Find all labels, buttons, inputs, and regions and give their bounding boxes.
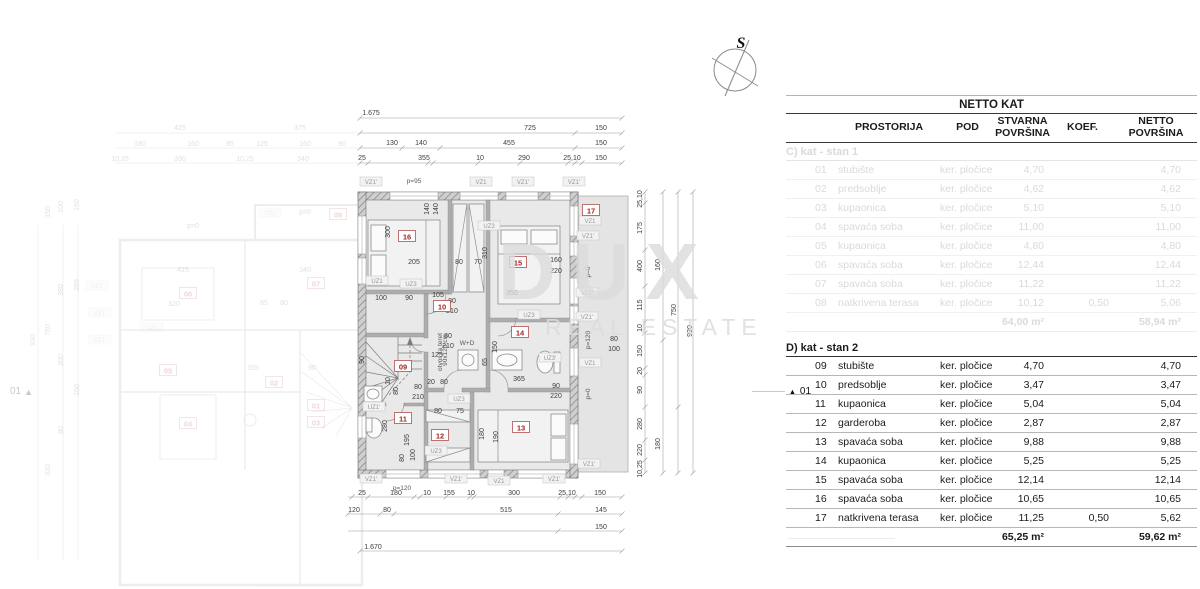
dim-label: 725	[524, 125, 536, 132]
dim-label: 150	[594, 490, 606, 497]
room-number: 10	[438, 303, 446, 312]
parapet-label: p=0	[585, 388, 592, 399]
opening-tag-label: UZ3	[405, 282, 417, 288]
cell: ker. pločice	[940, 297, 995, 309]
cell: 9,88	[995, 436, 1050, 448]
cell: 12,44	[995, 259, 1050, 271]
cell: 5,06	[1115, 297, 1197, 309]
cell: 2,87	[995, 417, 1050, 429]
cell: stubište	[838, 360, 940, 372]
dim-label: 80	[434, 408, 442, 415]
bg-dim-label: 320	[168, 301, 180, 308]
room-number: 12	[436, 432, 444, 441]
cell: ker. pločice	[940, 164, 995, 176]
dim-label: 220	[637, 444, 644, 456]
cell: ker. pločice	[940, 240, 995, 252]
dim-label: 10	[385, 377, 392, 385]
cell: spavaća soba	[838, 436, 940, 448]
cell: 02	[786, 183, 838, 195]
dim-label: 10	[467, 490, 475, 497]
dim-label: 1.675	[362, 110, 380, 117]
bg-dim-label: 90	[308, 365, 316, 372]
bg-dim-label: 425	[174, 125, 186, 132]
table-sections: C) kat - stan 101stubišteker. pločice4,7…	[786, 143, 1197, 547]
cell: 17	[786, 512, 838, 524]
dim-label: 310	[482, 247, 489, 259]
opening-tag-label: VZ1'	[583, 462, 595, 468]
compass: S	[712, 35, 758, 96]
table-row: 01stubišteker. pločice4,704,70	[786, 161, 1197, 180]
bg-dim-label: 340	[297, 156, 309, 163]
bg-dim-label: 150	[45, 206, 52, 218]
dim-label: 190	[493, 431, 500, 443]
total-stvarna: 65,25 m²	[995, 531, 1050, 543]
table-row: 14kupaonicaker. pločice5,255,25	[786, 452, 1197, 471]
bg-dim-label: 200	[58, 354, 65, 366]
dim-label: 150	[595, 524, 607, 531]
marker-label: 01	[10, 386, 21, 397]
floor-plan-sheet: 425375180160851251609010,2539010,2534015…	[0, 0, 1200, 589]
cell: natkrivena terasa	[838, 297, 940, 309]
opening-tag-label: VZ1	[264, 211, 276, 217]
bg-dim-label: p=0	[299, 209, 311, 216]
bg-dim-label: 90	[338, 141, 346, 148]
watermark-logo: DUX	[498, 232, 715, 312]
room-number: 04	[184, 420, 193, 429]
bg-dim-label: 10,25	[236, 156, 254, 163]
dim-label: 105	[432, 292, 444, 299]
table-row: 04spavaća sobaker. pločice11,0011,00	[786, 218, 1197, 237]
bg-dim-label: 155	[247, 365, 259, 372]
dim-label: 120	[348, 507, 360, 514]
dim-label: 195	[404, 434, 411, 446]
table-row: 11kupaonicaker. pločice5,045,04	[786, 395, 1197, 414]
bg-dim-label: p=0	[187, 223, 199, 230]
cell: 4,70	[1115, 164, 1197, 176]
cell: 13	[786, 436, 838, 448]
cell: 11,00	[1115, 221, 1197, 233]
opening-tag-label: VZ1	[584, 219, 596, 225]
room-number: 17	[587, 207, 595, 216]
col-pod: POD	[940, 122, 995, 134]
cell: kupaonica	[838, 240, 940, 252]
dim-label: 280	[382, 420, 389, 432]
cell: 11,22	[995, 278, 1050, 290]
bg-dim-label: 10,25	[111, 156, 129, 163]
cell: 4,70	[1115, 360, 1197, 372]
total-netto: 59,62 m²	[1115, 531, 1197, 543]
cell: 4,80	[995, 240, 1050, 252]
cell: 14	[786, 455, 838, 467]
cell: 10,65	[995, 493, 1050, 505]
cell: ker. pločice	[940, 202, 995, 214]
dim-label: 100	[410, 449, 417, 461]
bg-dim-label: 180	[134, 141, 146, 148]
total-stvarna: 64,00 m²	[995, 316, 1050, 328]
opening-tag-label: UZ3	[453, 397, 465, 403]
cell: 4,70	[995, 164, 1050, 176]
dim-label: 205	[408, 259, 420, 266]
table-section: C) kat - stan 101stubišteker. pločice4,7…	[786, 143, 1197, 332]
bg-dim-label: 160	[74, 199, 81, 211]
col-stvarna-povrsina: STVARNA POVRŠINA	[995, 116, 1050, 139]
cell: 01	[786, 164, 838, 176]
room-number: 01	[312, 402, 320, 411]
cell: 12,14	[1115, 474, 1197, 486]
table-row: 15spavaća sobaker. pločice12,1412,14	[786, 471, 1197, 490]
table-row: 16spavaća sobaker. pločice10,6510,65	[786, 490, 1197, 509]
dim-label: 80	[393, 387, 400, 395]
dim-label: 300	[385, 226, 392, 238]
cell: stubište	[838, 164, 940, 176]
opening-tag-label: VZ1'	[568, 180, 580, 186]
dim-label: 25,10	[563, 155, 581, 162]
cell: 0,50	[1050, 512, 1115, 524]
cell: 4,62	[995, 183, 1050, 195]
dim-label: 1.670	[364, 544, 382, 551]
cell: 03	[786, 202, 838, 214]
bg-dim-label: 100	[58, 201, 65, 213]
cell: kupaonica	[838, 202, 940, 214]
bg-dim-label: 85	[226, 141, 234, 148]
dim-label: 80	[414, 384, 422, 391]
section-marker-left: 01 ▲	[10, 386, 33, 397]
dim-label: 150	[637, 345, 644, 357]
dim-label: 290	[518, 155, 530, 162]
section-heading: C) kat - stan 1	[786, 143, 1197, 161]
cell: 5,04	[995, 398, 1050, 410]
cell: 16	[786, 493, 838, 505]
bg-dim-label: 150	[74, 384, 81, 396]
cell: garderoba	[838, 417, 940, 429]
dim-label: 65	[482, 358, 489, 366]
bg-dim-label: 390	[174, 156, 186, 163]
dim-label: 20	[637, 367, 644, 375]
parapet-label: p=120	[393, 485, 412, 492]
cell: 0,50	[1050, 297, 1115, 309]
dim-label: 140	[433, 203, 440, 215]
cell: ker. pločice	[940, 474, 995, 486]
watermark-subtitle: REAL ESTATE	[545, 316, 763, 339]
bg-dim-label: 160	[299, 141, 311, 148]
dim-label: 10	[423, 490, 431, 497]
bg-dim-label: 125	[256, 141, 268, 148]
dim-label: 90	[552, 383, 560, 390]
cell: 9,88	[1115, 436, 1197, 448]
cell: 04	[786, 221, 838, 233]
cell: spavaća soba	[838, 221, 940, 233]
opening-tag-label: UZ3	[483, 224, 495, 230]
bg-dim-label: 320	[45, 464, 52, 476]
faded-next-section-line	[788, 538, 895, 539]
dim-label: 80	[383, 507, 391, 514]
dim-label: 70	[474, 259, 482, 266]
dim-label: 180	[479, 428, 486, 440]
dim-label: 515	[500, 507, 512, 514]
bg-dim-label: 265	[74, 279, 81, 291]
cell: ker. pločice	[940, 512, 995, 524]
triangle-marker-icon: ▲	[24, 387, 33, 397]
dim-label: 90	[637, 386, 644, 394]
area-table: NETTO KAT PROSTORIJA POD STVARNA POVRŠIN…	[786, 95, 1197, 547]
bg-dim-label: 750	[45, 324, 52, 336]
cell: 11,25	[995, 512, 1050, 524]
cell: ker. pločice	[940, 379, 995, 391]
cell: 5,62	[1115, 512, 1197, 524]
bg-dim-label: 340	[299, 267, 311, 274]
cell: natkrivena terasa	[838, 512, 940, 524]
dim-label: 25	[358, 490, 366, 497]
cell: 2,87	[1115, 417, 1197, 429]
dim-label: 90	[405, 295, 413, 302]
dim-label: 155	[443, 490, 455, 497]
cell: 4,62	[1115, 183, 1197, 195]
cell: 5,25	[995, 455, 1050, 467]
opening-tag-label: VZ1'	[94, 338, 106, 344]
opening-tag-label: UZ1	[371, 279, 383, 285]
room-number: 09	[399, 363, 407, 372]
dim-label: 100	[608, 346, 620, 353]
room-number: 06	[184, 290, 192, 299]
dim-label: 80	[455, 259, 463, 266]
dim-label: 100	[375, 295, 387, 302]
bg-dim-label: 930	[30, 334, 37, 346]
compass-north-label: S	[737, 35, 746, 52]
dim-label: 130	[386, 140, 398, 147]
cell: spavaća soba	[838, 493, 940, 505]
dim-label: 150	[492, 341, 499, 353]
cell: 08	[786, 297, 838, 309]
dim-label: 455	[503, 140, 515, 147]
dim-label: 10	[476, 155, 484, 162]
cell: ker. pločice	[940, 221, 995, 233]
table-row: 13spavaća sobaker. pločice9,889,88	[786, 433, 1197, 452]
opening-tag-label: VZ1	[584, 361, 596, 367]
opening-tag-label: VZ1'	[450, 477, 462, 483]
cell: kupaonica	[838, 398, 940, 410]
table-row: 08natkrivena terasaker. pločice10,120,50…	[786, 294, 1197, 313]
opening-tag-label: VZ1'	[517, 180, 529, 186]
cell: 15	[786, 474, 838, 486]
opening-tag-label: UZ1'	[368, 405, 380, 411]
cell: 10	[786, 379, 838, 391]
bg-dim-label: 380	[58, 284, 65, 296]
dim-label: 75	[456, 408, 464, 415]
dim-label: 140	[415, 140, 427, 147]
opening-tag-label: VZ1	[475, 180, 487, 186]
cell: 12,14	[995, 474, 1050, 486]
room-number: 05	[164, 367, 172, 376]
bg-dim-label: 80	[280, 300, 288, 307]
cell: 3,47	[995, 379, 1050, 391]
cell: 5,25	[1115, 455, 1197, 467]
cell: ker. pločice	[940, 183, 995, 195]
room-number: 02	[270, 379, 278, 388]
dim-label: 300	[508, 490, 520, 497]
col-prostorija: PROSTORIJA	[838, 122, 940, 134]
room-number: 13	[517, 424, 525, 433]
dim-label: 25,10	[558, 490, 576, 497]
parapet-label: 90x120 cm	[442, 334, 449, 366]
cell: 3,47	[1115, 379, 1197, 391]
cell: 4,80	[1115, 240, 1197, 252]
opening-tag-label: VZ1'	[548, 477, 560, 483]
cell: 5,04	[1115, 398, 1197, 410]
dim-label: 220	[550, 393, 562, 400]
dim-label: 20	[427, 379, 435, 386]
cell: 12	[786, 417, 838, 429]
dim-label: 365	[513, 376, 525, 383]
dim-label: 140	[424, 203, 431, 215]
room-number: 03	[312, 419, 320, 428]
cell: spavaća soba	[838, 259, 940, 271]
cell: kupaonica	[838, 455, 940, 467]
dim-label: 210	[412, 394, 424, 401]
cell: ker. pločice	[940, 436, 995, 448]
dim-label: 90	[359, 356, 366, 364]
parapet-label: W+D	[460, 340, 475, 347]
parapet-label: p=95	[407, 178, 422, 185]
cell: 09	[786, 360, 838, 372]
opening-tag-label: VZ1'	[91, 284, 103, 290]
cell: ker. pločice	[940, 360, 995, 372]
cell: ker. pločice	[940, 493, 995, 505]
opening-tag-label: UZ3'	[544, 356, 556, 362]
opening-tag-label: UZ3	[430, 449, 442, 455]
dim-label: 145	[595, 507, 607, 514]
opening-tag-label: VZ1'	[365, 477, 377, 483]
table-row: 17natkrivena terasaker. pločice11,250,50…	[786, 509, 1197, 528]
room-number: 16	[403, 233, 411, 242]
dim-label: 150	[595, 125, 607, 132]
section-total-row: 64,00 m²58,94 m²	[786, 313, 1197, 332]
background-plan-lines	[38, 133, 362, 585]
opening-tag-label: VZ1	[493, 479, 505, 485]
cell: ker. pločice	[940, 417, 995, 429]
cell: predsoblje	[838, 379, 940, 391]
cell: ker. pločice	[940, 455, 995, 467]
table-title: NETTO KAT	[786, 95, 1197, 114]
table-section: D) kat - stan 209stubišteker. pločice4,7…	[786, 339, 1197, 547]
room-number: 07	[312, 280, 320, 289]
dim-label: 150	[595, 155, 607, 162]
table-row: 07spavaća sobaker. pločice11,2211,22	[786, 275, 1197, 294]
cell: 11,22	[1115, 278, 1197, 290]
col-netto-povrsina: NETTO POVRŠINA	[1115, 116, 1197, 139]
dim-label: 280	[637, 418, 644, 430]
dim-label: 25	[358, 155, 366, 162]
dim-label: 80	[399, 454, 406, 462]
opening-tag-label: UZ1	[146, 326, 158, 332]
table-row: 02predsobljeker. pločice4,624,62	[786, 180, 1197, 199]
cell: 4,70	[995, 360, 1050, 372]
dim-label: 150	[595, 140, 607, 147]
bg-dim-label: 415	[177, 267, 189, 274]
table-row: 03kupaonicaker. pločice5,105,10	[786, 199, 1197, 218]
cell: 10,65	[1115, 493, 1197, 505]
section-heading: D) kat - stan 2	[786, 339, 1197, 357]
cell: 06	[786, 259, 838, 271]
table-row: 05kupaonicaker. pločice4,804,80	[786, 237, 1197, 256]
dim-label: 10,25	[637, 460, 644, 478]
dim-label: 355	[418, 155, 430, 162]
room-number: 14	[516, 329, 525, 338]
marker-leader-line	[752, 391, 785, 392]
bg-dim-label: 375	[294, 125, 306, 132]
dim-label: 180	[655, 438, 662, 450]
table-row: 12garderobaker. pločice2,872,87	[786, 414, 1197, 433]
cell: predsoblje	[838, 183, 940, 195]
opening-tag-label: VZ1'	[94, 311, 106, 317]
cell: 07	[786, 278, 838, 290]
dim-label: 80	[440, 379, 448, 386]
col-koef: KOEF.	[1050, 122, 1115, 134]
dim-label: 25,10	[637, 190, 644, 208]
cell: 11	[786, 398, 838, 410]
cell: ker. pločice	[940, 398, 995, 410]
cell: 11,00	[995, 221, 1050, 233]
table-column-headers: PROSTORIJA POD STVARNA POVRŠINA KOEF. NE…	[786, 114, 1197, 143]
cell: ker. pločice	[940, 278, 995, 290]
cell: 5,10	[995, 202, 1050, 214]
total-netto: 58,94 m²	[1115, 316, 1197, 328]
opening-tag-label: VZ1'	[365, 180, 377, 186]
cell: 10,12	[995, 297, 1050, 309]
cell: 5,10	[1115, 202, 1197, 214]
room-number: 11	[399, 415, 407, 424]
cell: spavaća soba	[838, 278, 940, 290]
table-row: 06spavaća sobaker. pločice12,4412,44	[786, 256, 1197, 275]
bg-dim-label: 65	[260, 300, 268, 307]
cell: ker. pločice	[940, 259, 995, 271]
table-row: 10predsobljeker. pločice3,473,47	[786, 376, 1197, 395]
room-number: 08	[334, 211, 342, 220]
table-row: 09stubišteker. pločice4,704,70	[786, 357, 1197, 376]
bg-dim-label: 80	[58, 426, 65, 434]
cell: 12,44	[1115, 259, 1197, 271]
bg-dim-label: 160	[187, 141, 199, 148]
cell: 05	[786, 240, 838, 252]
cell: spavaća soba	[838, 474, 940, 486]
